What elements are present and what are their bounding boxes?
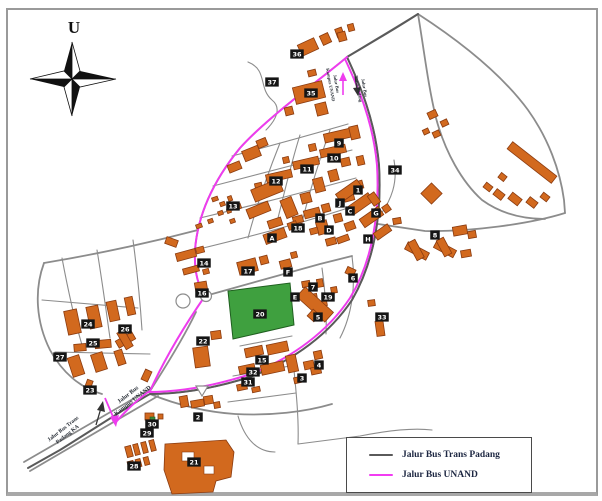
building-label-1: 1	[353, 185, 363, 194]
building-label-H: H	[363, 234, 373, 243]
building-label-15: 15	[255, 355, 269, 364]
svg-text:36: 36	[292, 51, 302, 59]
svg-text:28: 28	[129, 463, 139, 471]
svg-text:4: 4	[317, 362, 322, 370]
building-label-24: 24	[81, 319, 95, 328]
road-network	[24, 14, 565, 471]
svg-text:18: 18	[293, 225, 303, 233]
svg-text:20: 20	[255, 311, 265, 319]
svg-text:26: 26	[120, 326, 130, 334]
svg-text:1: 1	[356, 187, 361, 195]
svg-text:8: 8	[433, 232, 438, 240]
svg-text:2: 2	[196, 414, 201, 422]
legend-item-trans-padang: Jalur Bus Trans Padang	[347, 450, 531, 460]
road-route-label: Jalur Bus TransPadang KA	[47, 415, 85, 448]
building-label-19: 19	[321, 292, 335, 301]
building-label-18: 18	[291, 223, 305, 232]
legend-label-unand: Jalur Bus UNAND	[402, 470, 478, 480]
svg-text:27: 27	[55, 354, 64, 362]
building-label-25: 25	[86, 338, 100, 347]
building-label-10: 10	[327, 153, 341, 162]
building-label-E: E	[290, 292, 300, 301]
svg-text:24: 24	[83, 321, 93, 329]
building-label-20: 20	[253, 309, 267, 318]
svg-text:11: 11	[302, 166, 312, 174]
svg-text:5: 5	[316, 314, 321, 322]
road-route-label: Jalur BusKampus UNAND	[325, 67, 342, 103]
svg-text:J: J	[338, 200, 341, 208]
road-route-label: Jalur BusTrans Padang	[354, 74, 370, 103]
svg-text:14: 14	[199, 260, 209, 268]
svg-text:23: 23	[85, 387, 94, 395]
building-label-21: 21	[187, 457, 201, 466]
building-label-29: 29	[140, 428, 154, 437]
building-label-8: 8	[430, 230, 440, 239]
building-label-C: C	[345, 206, 355, 215]
building-label-A: A	[267, 233, 277, 242]
svg-text:6: 6	[351, 275, 356, 283]
building-label-31: 31	[241, 377, 255, 386]
building-label-28: 28	[127, 461, 141, 470]
svg-text:H: H	[365, 236, 370, 244]
building-label-3: 3	[297, 373, 307, 382]
svg-text:21: 21	[189, 459, 199, 467]
building-label-22: 22	[196, 336, 210, 345]
svg-text:3: 3	[300, 375, 305, 383]
campus-map: Jalur BusKampus UNANDJalur Bus TransPada…	[0, 0, 602, 501]
unand-line-swatch	[369, 474, 393, 477]
svg-text:G: G	[373, 210, 378, 218]
svg-text:17: 17	[243, 268, 252, 276]
trans-padang-line-swatch	[369, 454, 393, 457]
svg-text:D: D	[326, 227, 332, 235]
svg-text:30: 30	[147, 421, 157, 429]
svg-text:13: 13	[228, 203, 237, 211]
legend: Jalur Bus Trans Padang Jalur Bus UNAND	[346, 437, 532, 493]
building-label-4: 4	[314, 360, 324, 369]
building-label-D: D	[324, 225, 334, 234]
svg-text:34: 34	[390, 167, 400, 175]
svg-text:9: 9	[337, 140, 342, 148]
map-figure: Jalur BusKampus UNANDJalur Bus TransPada…	[0, 0, 602, 501]
building-label-9: 9	[334, 138, 344, 147]
building-label-13: 13	[226, 201, 240, 210]
building-label-14: 14	[197, 258, 211, 267]
svg-text:15: 15	[257, 357, 267, 365]
svg-text:31: 31	[243, 379, 253, 387]
svg-text:F: F	[286, 269, 290, 277]
building-label-16: 16	[195, 288, 209, 297]
building-label-12: 12	[269, 176, 283, 185]
building-label-30: 30	[145, 419, 159, 428]
building-label-F: F	[283, 267, 293, 276]
building-label-5: 5	[313, 312, 323, 321]
building-label-33: 33	[375, 312, 389, 321]
legend-item-unand: Jalur Bus UNAND	[347, 470, 531, 480]
svg-text:10: 10	[329, 155, 339, 163]
svg-text:25: 25	[88, 340, 98, 348]
svg-text:19: 19	[323, 294, 333, 302]
compass-north-label: U	[64, 18, 84, 38]
svg-text:C: C	[348, 208, 353, 216]
building-label-27: 27	[53, 352, 67, 361]
building-label-2: 2	[193, 412, 203, 421]
compass-rose	[30, 42, 116, 116]
svg-text:32: 32	[248, 369, 257, 377]
svg-text:16: 16	[197, 290, 207, 298]
svg-text:A: A	[269, 235, 274, 243]
svg-text:33: 33	[377, 314, 386, 322]
building-label-36: 36	[290, 49, 304, 58]
svg-text:29: 29	[142, 430, 152, 438]
building-label-11: 11	[300, 164, 314, 173]
svg-text:12: 12	[271, 178, 280, 186]
svg-text:37: 37	[267, 79, 276, 87]
legend-label-trans-padang: Jalur Bus Trans Padang	[402, 450, 500, 460]
svg-text:E: E	[293, 294, 297, 302]
svg-text:35: 35	[306, 90, 316, 98]
building-label-G: G	[371, 208, 381, 217]
svg-text:B: B	[318, 215, 323, 223]
building-label-6: 6	[348, 273, 358, 282]
svg-text:22: 22	[198, 338, 207, 346]
building-label-26: 26	[118, 324, 132, 333]
building-label-J: J	[335, 198, 345, 207]
route-arrows	[96, 72, 361, 427]
building-label-32: 32	[246, 367, 260, 376]
building-label-35: 35	[304, 88, 318, 97]
building-label-37: 37	[265, 77, 279, 86]
building-label-B: B	[315, 213, 325, 222]
building-label-7: 7	[308, 282, 318, 291]
building-label-17: 17	[241, 266, 255, 275]
svg-text:7: 7	[311, 284, 316, 292]
building-label-23: 23	[83, 385, 97, 394]
building-label-34: 34	[388, 165, 402, 174]
